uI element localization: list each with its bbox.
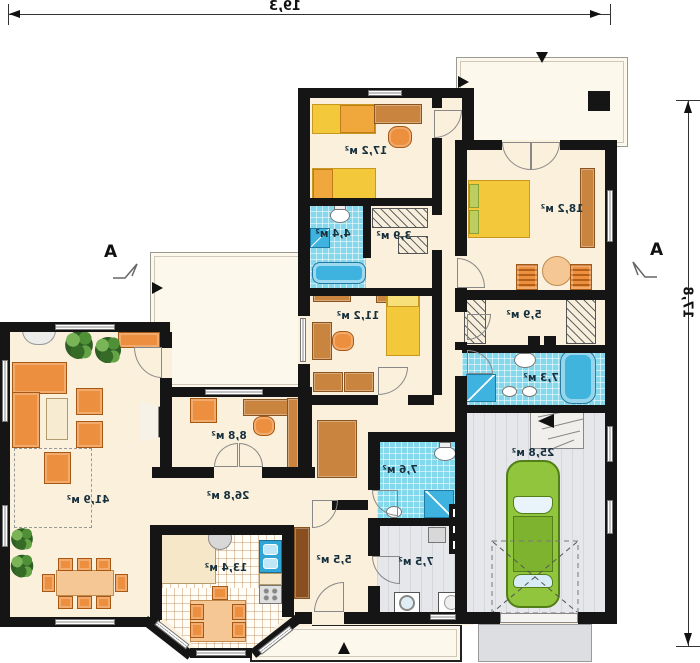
cabinet bbox=[344, 372, 374, 392]
toilet bbox=[330, 208, 350, 223]
wardrobe-unit bbox=[372, 208, 428, 228]
wall bbox=[455, 288, 467, 312]
window bbox=[430, 614, 456, 620]
bed-blanket bbox=[313, 169, 333, 199]
armchair bbox=[76, 388, 103, 415]
bed-blanket bbox=[340, 105, 375, 133]
room-label-vestibule: 5,5 м² bbox=[306, 554, 362, 566]
wardrobe-unit bbox=[566, 298, 596, 344]
room-label-bath2: 7,3 м² bbox=[513, 372, 569, 384]
sofa bbox=[12, 362, 67, 394]
entrance-arrow-icon bbox=[536, 52, 548, 63]
wall bbox=[152, 525, 284, 535]
section-marker-right: A bbox=[650, 240, 663, 260]
wall bbox=[368, 432, 380, 490]
wall bbox=[298, 88, 310, 316]
dimension-line bbox=[688, 100, 689, 646]
arrow-right-icon bbox=[590, 10, 601, 18]
room-label-utility: 7,5 м² bbox=[388, 556, 444, 568]
window bbox=[607, 426, 613, 462]
bed-pillow bbox=[387, 295, 419, 307]
wall bbox=[455, 376, 467, 432]
boiler bbox=[428, 527, 446, 543]
dining-chair bbox=[115, 574, 128, 592]
dining-chair bbox=[58, 596, 73, 609]
wall bbox=[455, 140, 502, 150]
arrow-down-icon bbox=[684, 633, 692, 645]
coffee-table bbox=[46, 398, 68, 440]
desk-chair bbox=[332, 331, 354, 351]
entrance-arrow-icon bbox=[458, 76, 469, 88]
dining-table bbox=[56, 570, 114, 596]
plant bbox=[64, 328, 94, 362]
dimension-width-label: 19,3 bbox=[255, 0, 315, 14]
room-label-closet2: 5,9 м² bbox=[496, 309, 552, 321]
cabinet bbox=[190, 398, 217, 423]
room-label-hall: 26,8 м² bbox=[200, 490, 256, 502]
room-label-office: 8,8 м² bbox=[201, 430, 257, 442]
room-label-bath1: 4,4 м² bbox=[305, 228, 361, 240]
hall-wardrobe bbox=[317, 420, 357, 478]
chair bbox=[212, 586, 228, 600]
dimension-right: 17,8 bbox=[660, 0, 700, 663]
terrace-top-left bbox=[150, 252, 310, 389]
garage-door-swing bbox=[491, 540, 579, 614]
toilet bbox=[434, 446, 456, 461]
wall bbox=[432, 250, 442, 395]
sink-basin bbox=[263, 558, 278, 569]
wall bbox=[462, 405, 617, 413]
washer-drum-icon bbox=[399, 595, 415, 611]
arrow-up-icon bbox=[684, 101, 692, 113]
driveway bbox=[478, 624, 592, 662]
room-label-bedroom2: 11,2 м² bbox=[330, 310, 386, 322]
entrance-arrow-icon bbox=[338, 642, 350, 654]
dining-chair bbox=[96, 596, 111, 609]
entrance-arrow-icon bbox=[152, 282, 163, 294]
stove bbox=[259, 585, 282, 604]
wall bbox=[344, 612, 380, 624]
dining-chair bbox=[58, 558, 73, 571]
sink bbox=[502, 386, 517, 397]
bathtub bbox=[312, 262, 366, 284]
room-label-living: 41,9 м² bbox=[60, 494, 116, 506]
wall bbox=[455, 612, 500, 624]
dimension-line bbox=[8, 14, 610, 15]
plant bbox=[94, 334, 122, 366]
room-label-bedroom1: 18,2 м² bbox=[534, 203, 590, 215]
section-break-icon bbox=[112, 261, 148, 281]
plant bbox=[10, 552, 34, 580]
chair bbox=[190, 604, 204, 620]
window bbox=[607, 500, 613, 534]
dimension-top: 19,3 bbox=[0, 0, 700, 30]
wall bbox=[368, 432, 467, 442]
wall bbox=[152, 467, 214, 478]
kitchen-counter bbox=[259, 573, 282, 585]
wall bbox=[310, 395, 378, 405]
armchair bbox=[76, 421, 103, 448]
dimension-tick bbox=[610, 4, 611, 25]
room-label-bath3: 7,6 м² bbox=[372, 464, 428, 476]
window bbox=[2, 360, 8, 422]
floor-plan: 19,3 17,8 A A bbox=[0, 0, 700, 663]
wall bbox=[408, 395, 434, 405]
plant bbox=[10, 526, 34, 552]
wall bbox=[467, 290, 617, 300]
pouf bbox=[44, 452, 71, 484]
toilet bbox=[514, 352, 536, 368]
room-label-garage: 25,8 м² bbox=[505, 447, 561, 459]
bed-pillow bbox=[469, 184, 479, 208]
room-label-kids: 17,2 м² bbox=[338, 145, 394, 157]
toilet-tank bbox=[439, 442, 451, 448]
chair bbox=[232, 604, 246, 620]
window bbox=[300, 318, 306, 362]
wall bbox=[432, 138, 442, 215]
window bbox=[55, 324, 115, 330]
window bbox=[55, 619, 115, 625]
window bbox=[368, 90, 402, 96]
wall bbox=[455, 140, 467, 256]
wall bbox=[160, 332, 172, 348]
desk bbox=[243, 399, 289, 416]
dining-chair bbox=[42, 574, 55, 592]
cabinet bbox=[313, 372, 343, 392]
arrow-left-icon bbox=[9, 10, 20, 18]
room-label-kitchen: 13,4 м² bbox=[198, 562, 254, 574]
room-label-closet1: 3,9 м² bbox=[366, 230, 422, 242]
bed-pillow bbox=[469, 210, 479, 234]
chair bbox=[516, 264, 538, 290]
desk bbox=[312, 322, 332, 360]
chimney bbox=[588, 91, 610, 111]
round-table bbox=[542, 256, 572, 286]
wall bbox=[282, 525, 294, 617]
chair bbox=[190, 622, 204, 638]
chair bbox=[570, 264, 592, 290]
wall bbox=[377, 518, 467, 526]
chair bbox=[232, 622, 246, 638]
wall bbox=[160, 397, 172, 477]
wall bbox=[578, 612, 617, 624]
window bbox=[205, 389, 263, 395]
sink-basin bbox=[263, 544, 278, 555]
dimension-height-label: 17,8 bbox=[680, 273, 695, 333]
window bbox=[607, 190, 613, 242]
sofa bbox=[12, 392, 40, 448]
section-break-icon bbox=[622, 258, 658, 280]
sideboard bbox=[118, 332, 160, 348]
window bbox=[196, 650, 246, 656]
desk bbox=[374, 104, 422, 124]
dimension-tick bbox=[676, 646, 700, 647]
wall bbox=[298, 364, 310, 390]
car-windshield bbox=[513, 496, 553, 514]
window bbox=[2, 505, 8, 547]
stairs bbox=[530, 407, 584, 449]
wall bbox=[462, 345, 617, 353]
wall bbox=[432, 98, 442, 108]
sink bbox=[522, 386, 537, 397]
wall bbox=[310, 198, 432, 206]
wall bbox=[310, 288, 432, 296]
section-marker-left: A bbox=[104, 242, 117, 262]
dining-chair bbox=[77, 558, 92, 571]
dining-chair bbox=[77, 596, 92, 609]
garage-door bbox=[500, 613, 578, 623]
dining-chair bbox=[96, 558, 111, 571]
wall bbox=[150, 525, 162, 620]
shower bbox=[466, 374, 496, 402]
